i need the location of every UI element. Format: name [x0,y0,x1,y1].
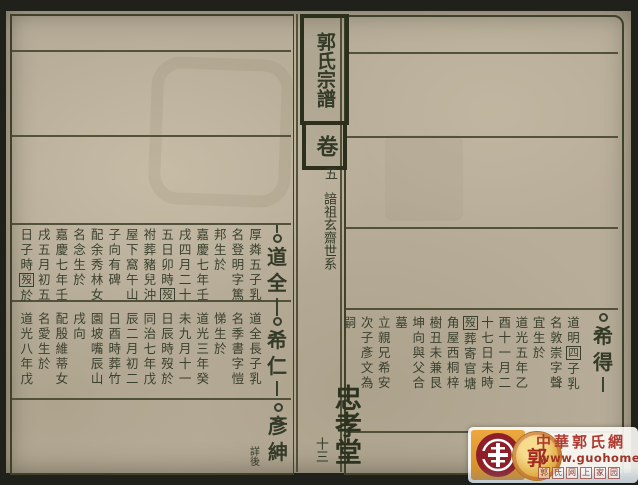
text-column: 日子時歿於 [19,227,34,303]
text-column: 名愛生於 [37,311,52,371]
text-column: 厚粦五子乳 [248,227,263,302]
section-title: 諳祖玄齋世系 [305,192,337,300]
connector-line [276,381,278,396]
text-column: 道全長子乳 [248,311,263,386]
text-column: 五日卯時歿 [160,227,175,303]
rule-left-1 [12,50,291,52]
site-url: www.guohome.org [539,451,638,465]
text-column: 道明四子乳 [566,315,581,391]
spine-title-box: 郭氏宗譜 [300,14,349,125]
text-column: 邦生於 [213,227,228,272]
text-column: 戌五月初五 [37,227,52,302]
genealogy-row-daoquan: 道全厚粦五子乳名登明字篤邦生於嘉慶七年壬戌四月二十五日卯時歿祔葬豬兒沖屋下窩午山… [12,225,293,298]
text-column: 日酉時葬竹 [107,311,122,386]
book-scan: 郭氏宗譜 卷 五 諳祖玄齋世系 十三 忠孝堂 道全厚粦五子乳名登明字篤邦生於嘉慶… [0,0,638,485]
rule-right-1 [346,52,618,54]
text-column: 坤向與父合 [411,315,426,390]
volume-number: 五 [302,167,339,180]
pedigree-circle-icon [274,403,283,412]
text-column: 角屋西桐梓 [446,315,461,390]
text-column: 配殷維蒂女 [54,311,69,386]
spine-line-left [296,14,298,472]
entry-name: 道全 [265,225,289,313]
text-column: 祔葬豬兒沖 [142,227,157,302]
text-column: 辰二月初二 [125,311,140,386]
text-column: 同治七年戊 [142,311,157,386]
text-column: 日辰時歿於 [160,311,175,386]
text-column: 配余秀林女 [90,227,105,302]
entry-name: 希仁 [265,308,289,396]
text-column: 屋下窩午山 [125,227,140,302]
site-slogan: 郭氏网上家园 [538,467,620,479]
text-column: 名季書字愷 [230,311,245,386]
rule-right-2 [346,136,618,138]
entry-name: 彥紳 [266,402,290,465]
text-column: 嘉慶七年壬 [54,227,69,302]
text-column: 歿葬寄官塘 [463,315,478,391]
note-see-later: 詳後 [246,446,259,466]
text-column: 次子彥文為 [360,315,375,390]
text-column: 悌生於 [213,311,228,356]
text-column: 酉十一月二 [497,315,512,390]
text-column: 立親兄希安 [377,315,392,390]
volume-label: 卷 [309,135,341,157]
text-column: 道光八年戊 [19,311,34,386]
text-column: 道光三年癸 [195,311,210,386]
connector-line [602,377,604,392]
site-name: 中華郭氏網 [536,431,626,452]
text-column: 戌四月二十 [178,227,193,302]
text-column: 園坡嘴辰山 [90,311,105,386]
text-column: 嗣 [342,315,357,330]
text-column: 子向有碑 [107,227,122,287]
text-column: 宜生於 [532,315,547,360]
text-column: 名登明字篤 [230,227,245,302]
text-column: 十七日未時 [480,315,495,390]
text-column: 樹丑未兼艮 [428,315,443,390]
genealogy-row-xiren: 希仁道全長子乳名季書字愷悌生於道光三年癸未九月十一日辰時歿於同治七年戊辰二月初二… [12,303,293,396]
book-title: 郭氏宗譜 [312,32,337,108]
text-column: 墓 [394,315,409,330]
text-column: 道光五年乙 [514,315,529,390]
text-column: 嘉慶七年壬 [195,227,210,302]
pedigree-circle-icon [273,317,282,326]
pedigree-circle-icon [273,234,282,243]
pedigree-circle-icon [599,313,608,322]
entry-name: 希得 [591,312,615,392]
text-column: 名念生於 [72,227,87,287]
watermark-banner: 郭 中華郭氏網 www.guohome.org 郭氏网上家园 [468,427,638,483]
volume-box: 卷 [302,121,347,170]
connector-line [276,308,278,316]
rule-right-3 [346,227,618,229]
genealogy-row-xide: 希得道明四子乳名敦崇字聲宜生於道光五年乙酉十一月二十七日未時歿葬寄官塘角屋西桐梓… [344,310,620,429]
leaf-number: 十三 [311,437,328,463]
text-column: 名敦崇字聲 [549,315,564,390]
connector-line [276,225,278,233]
text-column: 未九月十一 [178,311,193,386]
rule-left-2 [12,135,291,137]
text-column: 戌向 [72,311,87,341]
